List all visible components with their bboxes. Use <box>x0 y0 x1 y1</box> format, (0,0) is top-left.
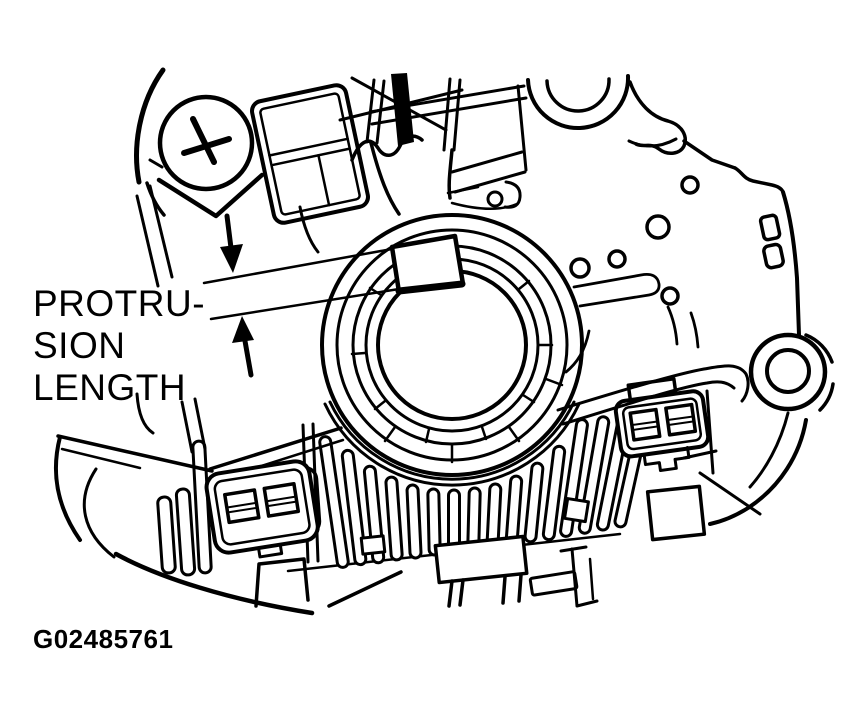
alternator-rear-diagram: PROTRU- SION LENGTH G02485761 <box>0 0 863 726</box>
figure-id: G02485761 <box>33 624 173 654</box>
brush-holder-right <box>300 78 526 252</box>
measure-arrow-up-icon <box>232 316 254 375</box>
rear-plate-details <box>566 274 698 372</box>
idler-boss <box>751 335 833 410</box>
bearing-boss-arcs <box>528 76 685 153</box>
callout-line-1: PROTRU- <box>33 283 205 324</box>
brush-protrusion <box>392 236 463 292</box>
callout-line-3: LENGTH <box>33 367 186 408</box>
measure-arrow-down-icon <box>220 216 243 273</box>
callout-line-2: SION <box>33 325 125 366</box>
phillips-screw-icon <box>160 97 252 189</box>
figure-canvas: PROTRU- SION LENGTH G02485761 <box>0 0 863 726</box>
edge-slots <box>760 215 784 269</box>
brush-holder-left <box>250 83 370 224</box>
